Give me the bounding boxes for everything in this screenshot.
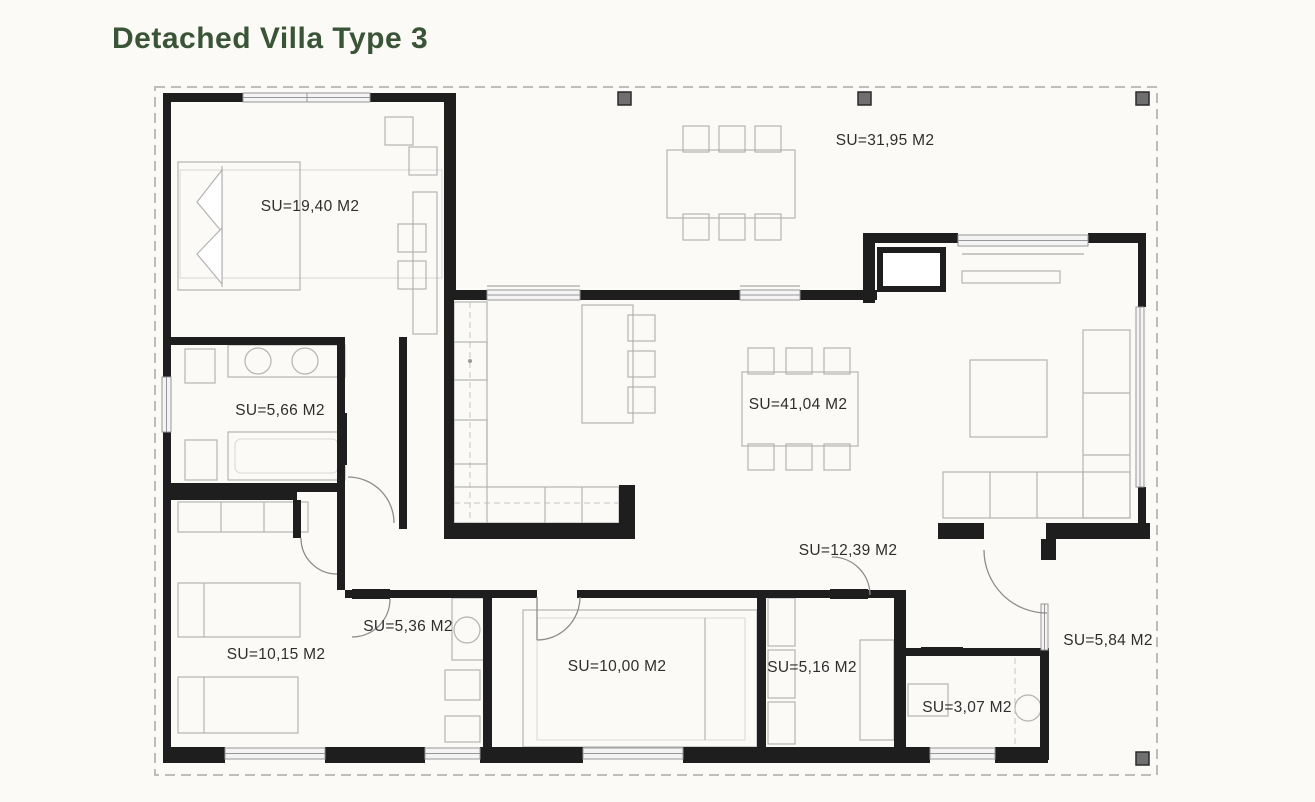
sofa xyxy=(1083,330,1130,518)
door-swing xyxy=(984,550,1047,613)
single-bed xyxy=(178,677,298,733)
door-leaf xyxy=(830,589,868,599)
pillow xyxy=(197,228,222,284)
chair xyxy=(748,444,774,470)
vanity xyxy=(452,598,488,660)
chair xyxy=(748,348,774,374)
door-leaf xyxy=(352,589,390,599)
chair xyxy=(683,126,709,152)
toilet xyxy=(1015,695,1041,721)
toilet xyxy=(185,440,217,480)
living-room-furniture xyxy=(742,271,1130,518)
pillow xyxy=(197,170,222,232)
room-label-terrace: SU=31,95 M2 xyxy=(836,132,935,150)
chair xyxy=(786,444,812,470)
room-label-hallway: SU=12,39 M2 xyxy=(799,542,898,560)
terrace-dining-set xyxy=(667,126,795,240)
wardrobe xyxy=(413,192,437,334)
door-swing xyxy=(348,477,394,523)
counter xyxy=(860,640,894,740)
floor-plan-drawing xyxy=(0,0,1315,802)
chair xyxy=(824,444,850,470)
double-bed xyxy=(178,162,300,290)
column-icon xyxy=(858,92,871,105)
bidet xyxy=(185,349,215,383)
door-leaf xyxy=(337,413,347,465)
chair xyxy=(786,348,812,374)
kitchen-counter xyxy=(454,487,619,523)
closet xyxy=(768,702,795,744)
room-label-master-bedroom: SU=19,40 M2 xyxy=(261,198,360,216)
chair xyxy=(719,126,745,152)
room-label-bathroom-main: SU=5,66 M2 xyxy=(235,402,325,420)
tv-cabinet xyxy=(962,271,1060,283)
stool xyxy=(628,315,655,341)
bedroom-2-furniture xyxy=(178,502,308,733)
room-label-bedroom-3: SU=10,00 M2 xyxy=(568,658,667,676)
fireplace-niche xyxy=(880,250,943,289)
door-swings xyxy=(301,477,1047,640)
door-leaf xyxy=(921,647,963,656)
room-label-side-porch: SU=5,84 M2 xyxy=(1063,632,1153,650)
chair xyxy=(755,126,781,152)
room-label-utility-room: SU=5,16 M2 xyxy=(767,659,857,677)
sink xyxy=(245,348,271,374)
room-label-wc: SU=3,07 M2 xyxy=(922,699,1012,717)
room-label-bedroom-2: SU=10,15 M2 xyxy=(227,646,326,664)
toilet xyxy=(445,670,480,700)
coffee-table xyxy=(970,360,1047,437)
dining-table xyxy=(667,150,795,218)
master-bedroom-furniture xyxy=(178,117,442,334)
room-label-living-dining: SU=41,04 M2 xyxy=(749,396,848,414)
room-label-bathroom-2: SU=5,36 M2 xyxy=(363,618,453,636)
sink xyxy=(292,348,318,374)
floor-plan-page: Detached Villa Type 3 xyxy=(0,0,1315,802)
closet xyxy=(768,598,795,646)
double-bed xyxy=(523,610,757,747)
stool xyxy=(628,387,655,413)
bedroom-3-furniture xyxy=(523,610,757,747)
stool xyxy=(628,351,655,377)
structural-columns xyxy=(618,92,1149,765)
wardrobe xyxy=(178,502,308,532)
breakfast-bar xyxy=(582,305,633,423)
single-bed xyxy=(178,583,300,637)
bidet xyxy=(445,716,480,742)
door-swing xyxy=(301,538,337,574)
column-icon xyxy=(618,92,631,105)
column-icon xyxy=(1136,92,1149,105)
chair xyxy=(824,348,850,374)
sink xyxy=(454,617,480,643)
column-icon xyxy=(1136,752,1149,765)
